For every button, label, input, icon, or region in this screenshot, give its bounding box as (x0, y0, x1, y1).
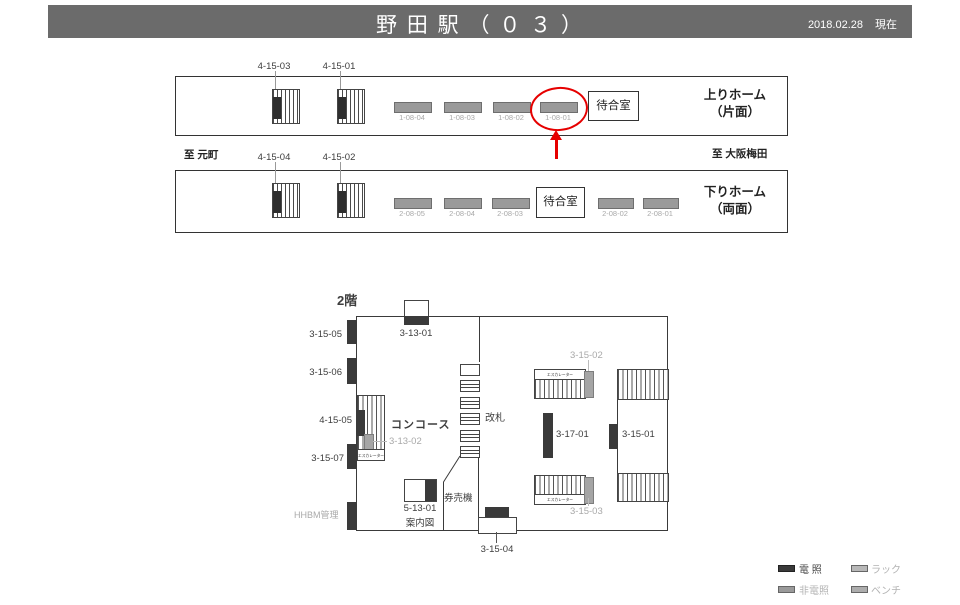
id-label: 3-15-03 (570, 506, 603, 517)
escalator-3-15-02: エスカレーター (534, 369, 586, 399)
date-area: 2018.02.28現在 (796, 16, 897, 32)
escalator-3-15-03: エスカレーター (534, 475, 586, 505)
signboard-lit-panel (273, 191, 281, 213)
poster-1-08-02 (493, 102, 531, 113)
id-label: 3-15-06 (298, 367, 342, 378)
poster-2-08-01 (643, 198, 679, 209)
gate-box (460, 364, 480, 376)
title-bar: 野 田 駅 （ ０ ３ ） 2018.02.28現在 (48, 5, 912, 38)
info-board-5-13-01 (404, 479, 437, 502)
id-label: 3-15-07 (300, 453, 344, 464)
unlit-sign-3-15-02 (584, 371, 594, 398)
hhbm-label: HHBM管理 (294, 508, 339, 521)
legend-bench-swatch (851, 586, 868, 593)
poster-label: 1-08-04 (394, 113, 430, 122)
id-label: 3-15-02 (570, 350, 603, 361)
legend-rack-label: ラック (871, 561, 901, 576)
id-label: 3-13-01 (396, 328, 436, 339)
poster-label: 2-08-03 (492, 209, 528, 218)
poster-label: 1-08-02 (493, 113, 529, 122)
signboard-label: 4-15-03 (254, 61, 294, 72)
lit-sign-3-15-04 (485, 507, 509, 517)
unlit-sign-3-15-03 (584, 477, 594, 504)
poster-1-08-04 (394, 102, 432, 113)
lit-sign-4-15-05 (356, 410, 365, 436)
escalator-steps (535, 476, 585, 495)
legend-bench-label: ベンチ (871, 582, 901, 597)
poster-2-08-03 (492, 198, 530, 209)
leader-line (588, 498, 589, 506)
id-label: 3-15-04 (477, 544, 517, 555)
lit-sign-3-15-06 (347, 358, 357, 384)
lit-sign-hhbm (347, 502, 357, 530)
id-label: 3-15-01 (622, 429, 655, 440)
direction-left: 至 元町 (184, 147, 218, 162)
lit-sign-3-15-05 (347, 320, 357, 344)
waiting-room-down: 待合室 (536, 187, 585, 218)
highlight-arrow-shaft (555, 139, 558, 159)
legend-lit-swatch (778, 565, 795, 572)
gate-box (460, 413, 480, 425)
lit-sign-3-15-07 (347, 444, 357, 469)
id-label: 3-17-01 (556, 429, 589, 440)
leader-line (340, 71, 341, 89)
escalator-left-box: エスカレーター (357, 449, 385, 461)
poster-label: 1-08-03 (444, 113, 480, 122)
poster-label: 2-08-01 (642, 209, 678, 218)
poster-label: 2-08-05 (394, 209, 430, 218)
leader-line (275, 162, 276, 183)
platform-up-name: 上りホーム （片面） (699, 87, 771, 121)
platform-down-name: 下りホーム （両面） (699, 184, 771, 218)
info-map-label: 案内図 (402, 515, 438, 529)
signboard-label: 4-15-04 (254, 152, 294, 163)
id-label: 4-15-05 (308, 415, 352, 426)
escalator-label-box: エスカレーター (535, 370, 585, 380)
lit-sign-3-13-01 (404, 316, 429, 325)
poster-label: 2-08-02 (597, 209, 633, 218)
escalator-label: エスカレーター (358, 452, 384, 458)
signboard-label: 4-15-02 (319, 152, 359, 163)
signboard-lit-panel (338, 97, 346, 119)
info-board-lit-panel (425, 480, 436, 501)
signboard-label: 4-15-01 (319, 61, 359, 72)
leader-line (588, 360, 589, 371)
waiting-room-up: 待合室 (588, 91, 639, 121)
legend-unlit-swatch (778, 586, 795, 593)
legend-rack-swatch (851, 565, 868, 572)
signboard-lit-panel (273, 97, 281, 119)
gate-box (460, 397, 480, 409)
lit-sign-3-15-01 (609, 424, 618, 449)
poster-label: 2-08-04 (444, 209, 480, 218)
legend-unlit-label: 非電照 (799, 582, 829, 597)
box-3-15-04 (478, 517, 517, 534)
concourse-label: コンコース (391, 416, 450, 432)
leader-line (275, 71, 276, 89)
gate-box (460, 430, 480, 442)
signboard-lit-panel (338, 191, 346, 213)
gate-label: 改札 (485, 409, 505, 424)
gate-box (460, 446, 480, 458)
leader-line (496, 532, 497, 543)
gate-box (460, 380, 480, 392)
stairs-bottom (617, 473, 669, 502)
id-label: 3-15-05 (298, 329, 342, 340)
direction-right: 至 大阪梅田 (712, 146, 767, 161)
id-label: 3-13-02 (389, 436, 422, 447)
stairs-top (617, 369, 669, 400)
poster-2-08-02 (598, 198, 634, 209)
date-status-label: 現在 (875, 19, 897, 31)
legend-lit-label: 電 照 (799, 561, 822, 576)
lit-sign-3-17-01 (543, 413, 553, 458)
ticket-machine-label: 券売機 (444, 490, 473, 504)
id-label: 5-13-01 (402, 503, 438, 514)
station-media-map: 野 田 駅 （ ０ ３ ） 2018.02.28現在 4-15-03 4-15-… (0, 0, 960, 605)
escalator-steps (535, 380, 585, 398)
station-title: 野 田 駅 （ ０ ３ ） (48, 9, 912, 39)
poster-2-08-05 (394, 198, 432, 209)
poster-1-08-03 (444, 102, 482, 113)
date-label: 2018.02.28 (808, 19, 863, 31)
leader-line (340, 162, 341, 183)
leader-line (373, 441, 387, 442)
poster-2-08-04 (444, 198, 482, 209)
escalator-label-box: エスカレーター (535, 495, 585, 504)
